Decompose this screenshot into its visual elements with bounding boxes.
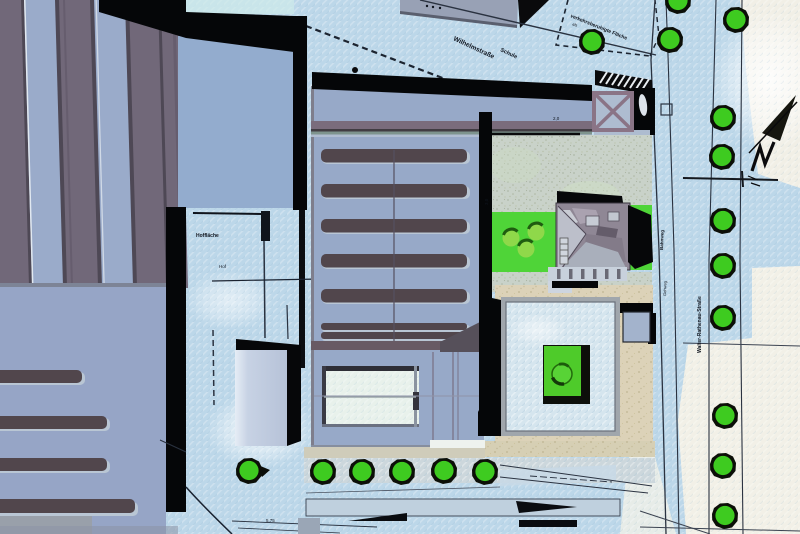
svg-text:Hoffläche: Hoffläche xyxy=(196,233,219,239)
svg-text:Bahnweg: Bahnweg xyxy=(659,230,665,250)
svg-text:3,0: 3,0 xyxy=(484,198,489,205)
svg-text:Walter-Rathenau-Straße: Walter-Rathenau-Straße xyxy=(697,296,703,353)
svg-text:Hof: Hof xyxy=(219,264,227,269)
svg-text:2,0: 2,0 xyxy=(553,116,560,121)
svg-text:Gehweg: Gehweg xyxy=(662,281,668,296)
